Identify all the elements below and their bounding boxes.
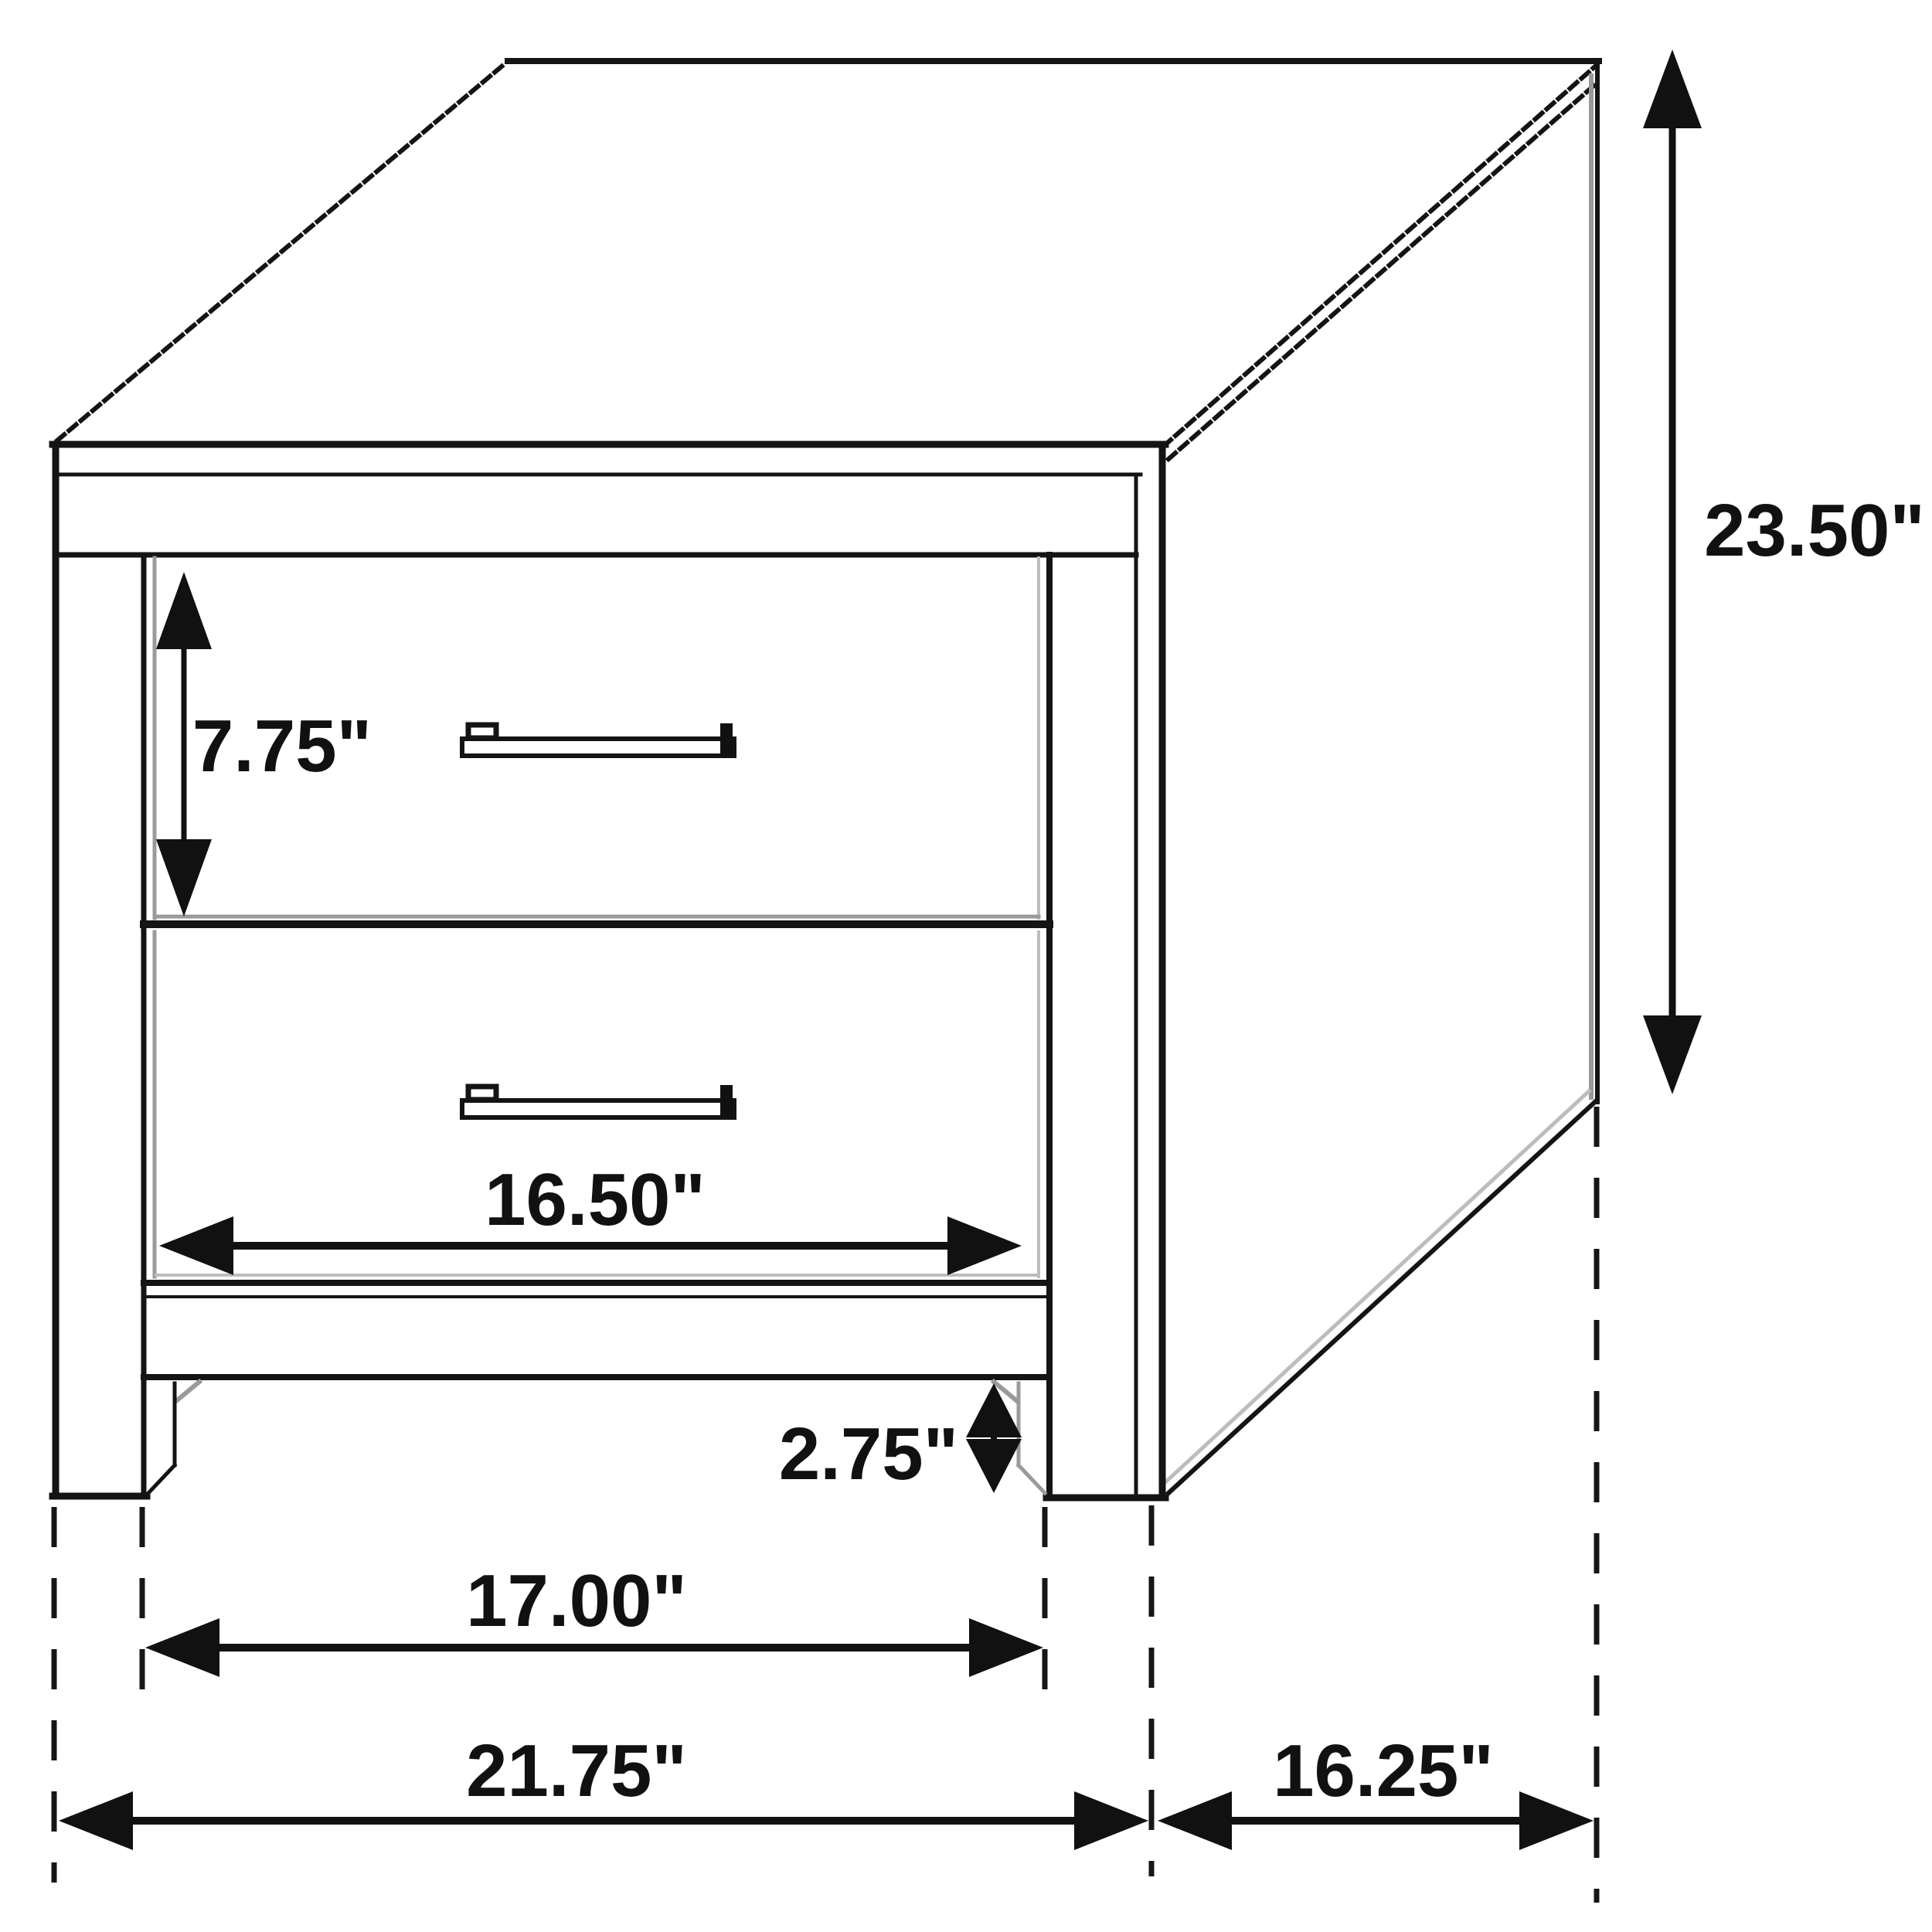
arrowhead-right [969,1618,1043,1677]
handle-bar [462,739,734,756]
dimension-label-overall-width: 21.75" [466,1730,687,1812]
front-face [53,444,1165,1498]
side-panel-bottom-edge [1168,1100,1597,1493]
arrowhead-up [1643,49,1702,128]
handle-bar [462,1100,734,1117]
dimension-overall-width: 21.75" [59,1730,1148,1850]
arrowhead-down [156,839,212,917]
top-face-left-edge [57,63,506,440]
dimension-overall-height: 23.50" [1643,49,1925,1094]
left-leg-notch-bottom-bevel [148,1465,175,1493]
drawer-bottom-handle [462,1085,734,1117]
top-face-right-edge-outer [1164,66,1595,446]
dimension-base-height: 2.75" [779,1383,1022,1495]
arrowhead-right [947,1216,1022,1275]
arrowhead-up [156,572,212,649]
arrowhead-down [1643,1015,1702,1094]
top-face-right-edge-inner [1168,82,1598,459]
handle-right-post [720,1085,733,1117]
dimension-drawer-width: 16.50" [159,1158,1022,1275]
dimension-label-drawer-height: 7.75" [192,705,372,787]
arrowhead-right [1519,1791,1594,1850]
dimension-inner-leg-span: 17.00" [145,1560,1043,1677]
right-leg-notch-bottom-bevel [1019,1465,1045,1493]
arrowhead-right [1074,1791,1148,1850]
dimension-label-overall-height: 23.50" [1704,489,1925,572]
arrowhead-down [966,1439,1022,1493]
dimension-side-depth: 16.25" [1158,1730,1594,1850]
arrowhead-up [966,1383,1022,1437]
dimension-label-drawer-width: 16.50" [485,1158,706,1241]
dimension-label-inner-leg-span: 17.00" [466,1560,687,1642]
left-leg-notch-top-bevel [177,1382,199,1400]
handle-left-post [468,1087,496,1100]
arrowhead-left [159,1216,233,1275]
side-panel-bottom-edge-shadow [1165,1091,1589,1482]
drawer-top-handle [462,723,734,756]
side-panel [1165,65,1597,1493]
top-face [57,61,1599,459]
arrowhead-left [145,1618,219,1677]
left-leg-notch [148,1382,199,1493]
dimension-label-side-depth: 16.25" [1273,1730,1494,1812]
dimension-label-base-height: 2.75" [779,1413,958,1495]
arrowhead-left [59,1791,133,1850]
handle-left-post [468,725,496,738]
dimension-drawer-height: 7.75" [156,572,372,917]
diagram-canvas: 23.50" 7.75" 16.50" 2.75" 17.00" 21.75" [0,0,1932,1932]
arrowhead-left [1158,1791,1232,1850]
handle-right-post [720,723,733,756]
